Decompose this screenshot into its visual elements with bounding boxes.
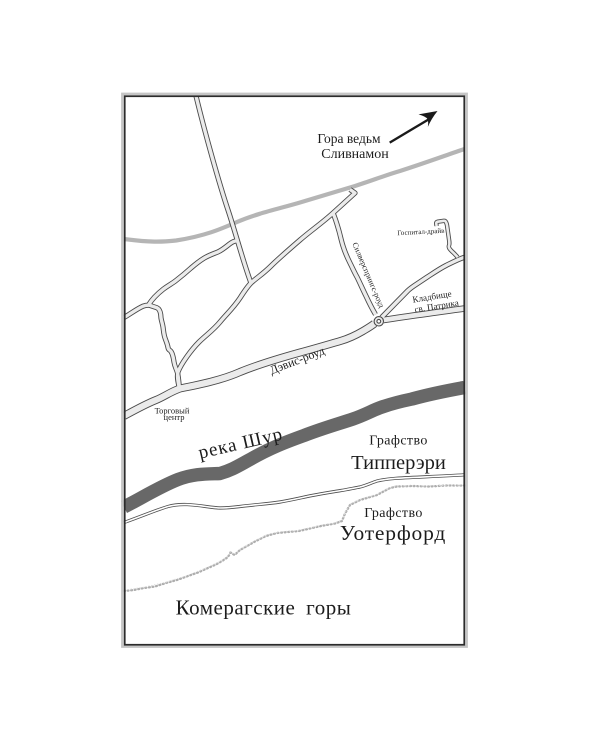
- svg-text:Типперэри: Типперэри: [351, 452, 446, 474]
- svg-text:центр: центр: [164, 412, 185, 422]
- svg-text:Сливнамон: Сливнамон: [321, 147, 389, 162]
- svg-text:Уотерфорд: Уотерфорд: [340, 521, 446, 545]
- svg-text:Гора ведьм: Гора ведьм: [317, 131, 381, 146]
- svg-text:Комерагские горы: Комерагские горы: [176, 596, 352, 620]
- svg-text:Графство: Графство: [364, 506, 423, 521]
- svg-text:Графство: Графство: [369, 434, 428, 449]
